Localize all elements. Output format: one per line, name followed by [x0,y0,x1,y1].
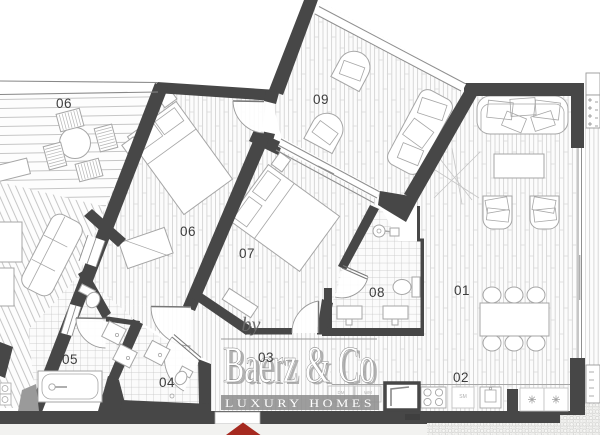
svg-text:06: 06 [56,96,72,111]
svg-text:06: 06 [180,224,196,239]
svg-text:01: 01 [454,283,470,298]
svg-text:07: 07 [239,246,255,261]
svg-text:08: 08 [369,285,385,300]
svg-text:SM: SM [459,394,467,400]
svg-text:by: by [242,314,261,336]
svg-text:Baerz & Co: Baerz & Co [223,337,375,394]
svg-text:LUXURY HOMES: LUXURY HOMES [225,398,375,410]
svg-text:09: 09 [313,92,329,107]
svg-text:05: 05 [62,352,78,367]
svg-text:04: 04 [159,375,175,390]
svg-text:02: 02 [453,370,469,385]
svg-text:03: 03 [258,350,274,365]
